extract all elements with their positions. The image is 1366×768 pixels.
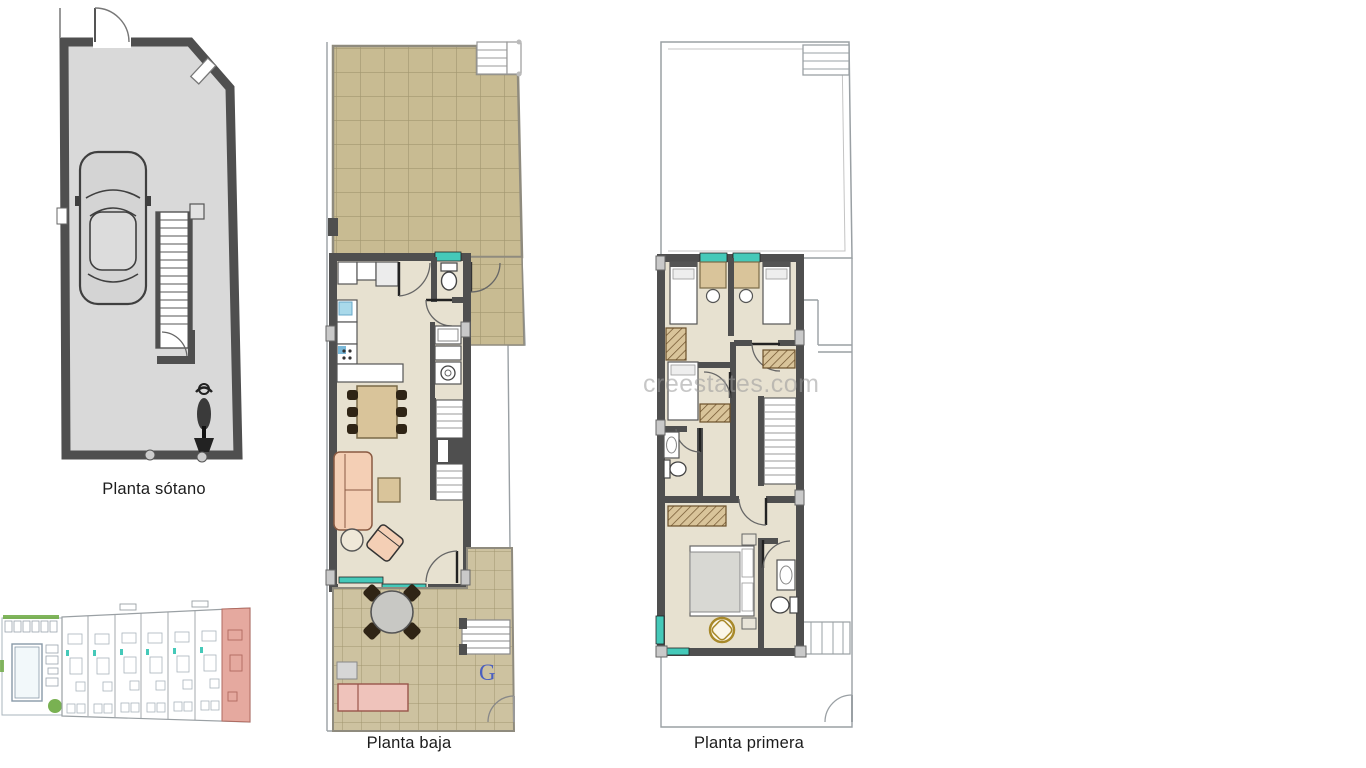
garage-letter-mark: G [479,660,496,686]
coffee-table [378,478,400,502]
patio-side-table [337,662,357,679]
toilet-icon [441,263,457,290]
highlighted-unit [222,608,250,722]
window [733,253,760,262]
wardrobe [668,506,726,526]
single-bed [670,262,697,324]
interior-stairs [430,398,463,500]
sun-lounger [338,684,408,711]
wardrobe [666,328,686,360]
ground-floor-plan-label: Planta baja [367,734,452,753]
hedge [3,615,59,619]
first-floor-plan-label: Planta primera [694,734,804,753]
floorplan-sheet: Planta sótano Planta baja Planta primera… [0,0,1366,768]
patio-table-set [362,583,422,641]
sink-icon [339,302,352,315]
roof-bump [120,604,136,610]
ground-floor-plan [326,40,525,732]
window [700,253,727,262]
tree-icon [48,699,62,713]
double-bed [690,534,756,629]
watermark-text: creestates.com [643,370,820,399]
sofa [334,452,372,530]
patio-stair [459,618,510,655]
interior-stairs [758,396,796,486]
toilet-icon [771,597,789,613]
dining-table [347,386,407,438]
terrace-stair [477,40,522,77]
pool [12,644,42,701]
wall-post [145,450,155,460]
rear-stair [800,622,850,654]
pouf [341,529,363,551]
breakfast-bar [337,364,403,382]
site-plan-thumbnail [0,601,250,722]
wall-connector [57,208,67,224]
basement-plan [57,8,238,462]
side-path [467,257,524,345]
basement-plan-label: Planta sótano [102,480,206,499]
front-terrace [333,46,522,257]
hedge [0,660,4,672]
rear-gate-arc [825,695,852,722]
toilet-icon [670,462,686,476]
wall-post [197,452,207,462]
window [435,252,461,261]
gold-armchair [710,618,734,642]
window [656,616,664,644]
roof-terrace-stair [803,45,849,75]
roof-bump [192,601,208,607]
car-icon [75,152,151,304]
wardrobe [700,404,730,422]
wardrobe [763,350,795,368]
single-bed [763,262,790,324]
